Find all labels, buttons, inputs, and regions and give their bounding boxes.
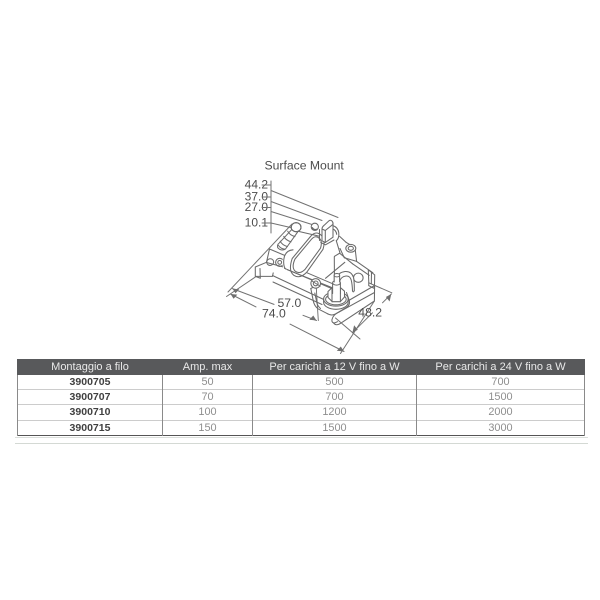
svg-text:48.2: 48.2	[358, 305, 382, 319]
svg-text:74.0: 74.0	[262, 307, 286, 321]
svg-text:Surface Mount: Surface Mount	[265, 159, 345, 173]
